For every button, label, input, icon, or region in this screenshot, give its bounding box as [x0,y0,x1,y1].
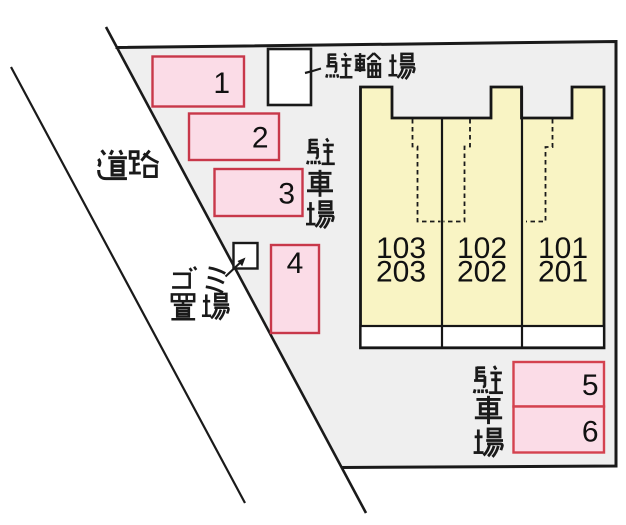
svg-text:3: 3 [278,177,295,210]
svg-text:6: 6 [582,416,599,449]
svg-text:202: 202 [457,255,507,288]
svg-text:2: 2 [252,121,269,154]
svg-text:5: 5 [582,369,599,402]
svg-text:201: 201 [538,255,588,288]
svg-text:203: 203 [376,255,426,288]
svg-text:4: 4 [287,247,304,280]
svg-text:1: 1 [213,67,230,100]
